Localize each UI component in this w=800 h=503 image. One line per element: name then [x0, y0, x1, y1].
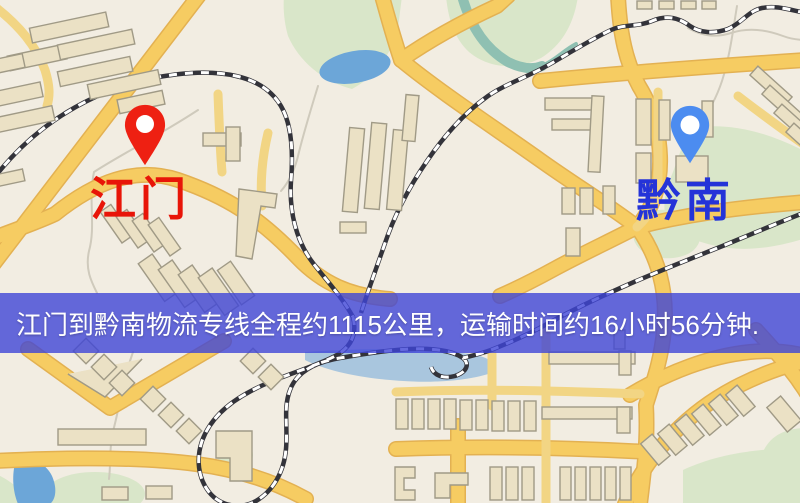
pin-body	[125, 105, 165, 165]
origin-pin[interactable]	[122, 103, 168, 168]
route-info-banner: 江门到黔南物流专线全程约1115公里，运输时间约16小时56分钟.	[0, 293, 800, 353]
origin-label: 江门	[90, 176, 190, 222]
destination-label: 黔南	[636, 178, 734, 223]
pin-body	[671, 106, 709, 163]
pin-hole	[136, 115, 154, 133]
route-info-text: 江门到黔南物流专线全程约1115公里，运输时间约16小时56分钟.	[0, 305, 759, 342]
map-canvas[interactable]	[0, 0, 800, 503]
map-pin-icon	[668, 104, 712, 166]
pin-hole	[681, 115, 700, 134]
map-pin-icon	[122, 103, 168, 168]
logistics-route-map: 江门 黔南 江门到黔南物流专线全程约1115公里，运输时间约16小时56分钟.	[0, 0, 800, 503]
destination-pin[interactable]	[668, 104, 712, 166]
